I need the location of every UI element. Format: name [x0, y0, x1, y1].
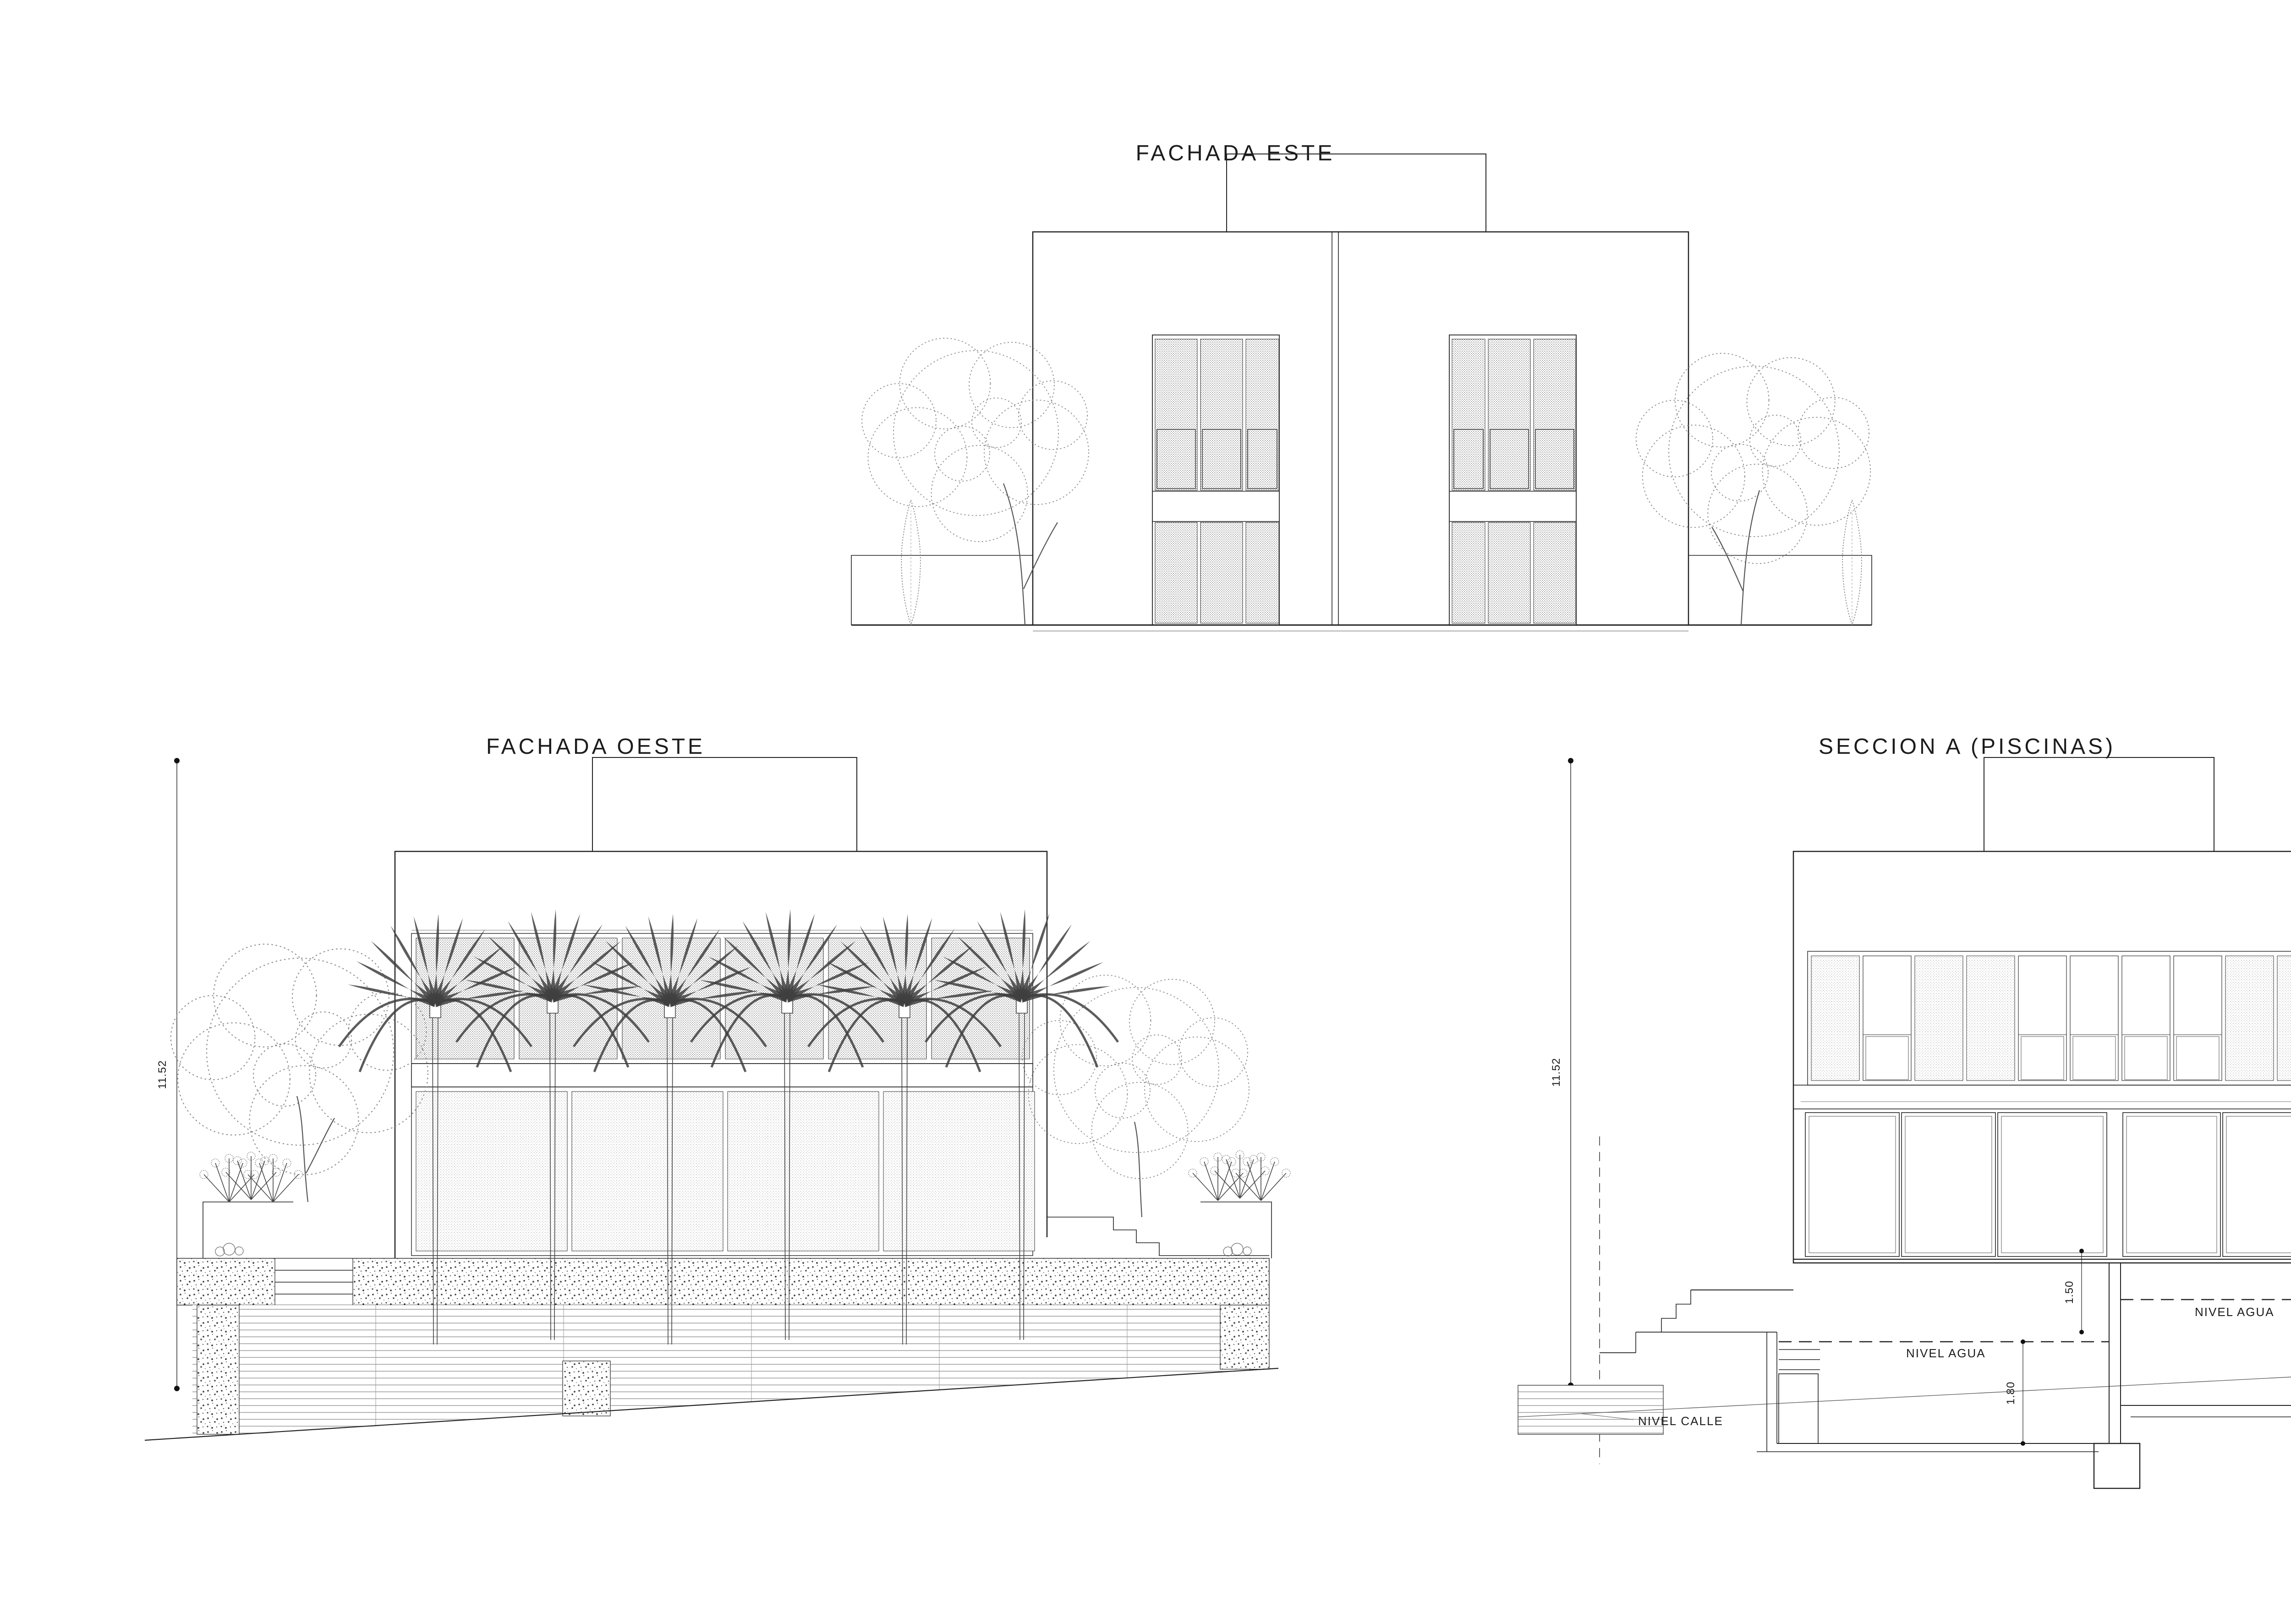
oeste-stone-pier-right	[1220, 1305, 1269, 1369]
crown-blob	[862, 384, 936, 458]
seccion-lower-pane	[1805, 1113, 1899, 1256]
nivel-agua-left-label: NIVEL AGUA	[1906, 1346, 1986, 1360]
rock	[1223, 1247, 1233, 1256]
seccion-left-pool: NIVEL AGUA 1.80	[1757, 1332, 2109, 1452]
seccion-glass-panel	[2018, 956, 2066, 1081]
glass-sash	[1866, 1037, 1908, 1080]
cypress-tree	[1842, 500, 1862, 625]
seccion-louvre-panel	[1915, 956, 1963, 1081]
seccion-lower-glazing	[1805, 1113, 2291, 1256]
glass-sash	[2021, 1037, 2064, 1080]
oeste-glazing-panel	[572, 1092, 723, 1251]
seccion-upper-panels	[1811, 956, 2291, 1081]
seccion-left-terraces	[1518, 1290, 1793, 1434]
rock	[1231, 1243, 1243, 1255]
este-garden-wall-left	[851, 555, 1033, 625]
oeste-lower-glazing-panels	[416, 1092, 1035, 1251]
crown-blob	[292, 949, 389, 1046]
crown-blob	[969, 342, 1054, 428]
louvre-panel-lower	[1200, 522, 1243, 623]
louvre-panel-upper	[1488, 339, 1530, 490]
oeste-entry-steps	[275, 1258, 353, 1305]
cypress-tree	[901, 500, 921, 625]
crown-blob	[214, 944, 316, 1047]
oeste-terrace-steps-right	[1047, 1217, 1269, 1256]
oeste-base-wall	[192, 1305, 1269, 1438]
planter-palm-leaf	[259, 1163, 273, 1202]
seccion-glass-panel	[1863, 956, 1911, 1081]
louvre-panel-upper	[1452, 339, 1485, 490]
seccion-lower-pane-inner	[2001, 1116, 2103, 1253]
planter-palm	[222, 1152, 280, 1200]
rock	[1243, 1247, 1251, 1255]
crown-blob	[1798, 397, 1869, 468]
louvre-panel-upper	[1200, 339, 1243, 490]
seccion-height-dimension: 11.52	[1550, 758, 1573, 1388]
seccion-floor-drop-dimension: 1.50	[2063, 1249, 2084, 1334]
oeste-glazing-panel	[416, 1092, 567, 1251]
oeste-height-dimension: 11.52	[156, 758, 180, 1391]
este-main-body	[1033, 232, 1688, 625]
louvre-panel-lower	[1452, 522, 1485, 623]
crown-blob	[1708, 464, 1807, 564]
crown-blob	[171, 996, 255, 1080]
palm-frond-drooping	[1022, 995, 1097, 1067]
seccion-roof-box	[1984, 757, 2214, 851]
louvre-panel-upper	[1155, 339, 1197, 490]
seccion-lower-pane-inner	[1809, 1116, 1896, 1253]
nivel-agua-right-label: NIVEL AGUA	[2195, 1305, 2275, 1319]
tree-trunk	[1135, 1122, 1142, 1217]
planter-palm-leaf	[1261, 1173, 1286, 1201]
title-fachada-oeste: FACHADA OESTE	[486, 735, 705, 759]
tree-trunk	[1003, 483, 1058, 625]
oeste-roof-box	[592, 757, 857, 851]
oeste-height-label: 11.52	[156, 1060, 169, 1089]
title-seccion-a: SECCION A (PISCINAS)	[1819, 735, 2116, 759]
planter-palm	[1232, 1153, 1290, 1201]
seccion-lower-pane-inner	[2127, 1116, 2217, 1253]
oeste-glazing-panel	[883, 1092, 1035, 1251]
oeste-planter-right	[1200, 1202, 1272, 1258]
louvre-panel-upper	[1246, 339, 1279, 490]
tree-crown	[1636, 353, 1871, 564]
crown-blob	[1179, 1018, 1248, 1086]
seccion-glass-panel	[2070, 956, 2118, 1081]
crown-blob	[1636, 400, 1713, 477]
rock	[215, 1247, 225, 1256]
pool-sump	[2094, 1443, 2140, 1488]
drawing-seccion-a: SECCION A (PISCINAS) 11.52	[1518, 735, 2291, 1488]
crown-blob	[972, 398, 1021, 448]
crown-blob	[935, 426, 990, 481]
crown-blob	[1129, 979, 1215, 1064]
planter-rocks	[1223, 1243, 1251, 1256]
planter-palm-leaf	[204, 1174, 229, 1202]
glass-sash	[2073, 1037, 2116, 1080]
seccion-lower-pane	[2223, 1113, 2291, 1256]
drawing-fachada-este: FACHADA ESTE	[851, 141, 1872, 631]
planter-palm-leaf	[1204, 1162, 1218, 1201]
pool-depth-label: 1.80	[2005, 1382, 2017, 1405]
crown-blob	[900, 338, 991, 429]
crown-blob	[932, 445, 1028, 542]
glass-sash	[2176, 1037, 2219, 1080]
tree-crown	[862, 338, 1089, 542]
seccion-louvre-panel	[1811, 956, 1859, 1081]
crown-blob	[1092, 1082, 1188, 1179]
oeste-stone-pier-left	[197, 1305, 239, 1434]
este-vegetation	[862, 338, 1870, 625]
oeste-glazing-panel	[728, 1092, 879, 1251]
crown-blob	[1132, 1035, 1182, 1085]
este-garden-wall-right	[1688, 555, 1872, 625]
seccion-glass-panel	[2174, 956, 2222, 1081]
nivel-calle-left-label: NIVEL CALLE	[1638, 1414, 1723, 1428]
rock	[235, 1247, 243, 1255]
seccion-louvre-panel	[2225, 956, 2274, 1081]
seccion-lower-pane-inner	[1905, 1116, 1992, 1253]
louvre-panel-lower	[1155, 522, 1197, 623]
crown-blob	[1022, 1020, 1096, 1095]
crown-blob	[1675, 353, 1769, 447]
crown-blob	[1019, 381, 1087, 450]
seccion-louvre-panel	[1967, 956, 2015, 1081]
planter-palm-leaf	[273, 1174, 298, 1202]
crown-blob	[253, 1044, 316, 1106]
este-window-bays	[1152, 335, 1576, 625]
planter-palm-leaf	[1247, 1162, 1261, 1201]
tree-trunk	[1712, 490, 1759, 625]
seccion-lower-pane	[2123, 1113, 2220, 1256]
louvre-panel-lower	[1246, 522, 1279, 623]
architectural-sheet: FACHADA ESTE FACHADA OESTE 11.52	[0, 0, 2291, 1624]
tree-crown	[1022, 975, 1249, 1179]
louvre-panel-upper	[1534, 339, 1576, 490]
seccion-lower-pane-inner	[2226, 1116, 2291, 1253]
planter-palm-leaf	[215, 1163, 229, 1202]
glass-sash	[2125, 1037, 2167, 1080]
oeste-planter-left	[203, 1202, 293, 1258]
planter-palm-leaf	[229, 1163, 243, 1202]
planter-rocks	[215, 1243, 243, 1256]
crown-blob	[893, 351, 1058, 516]
planter-palm-leaf	[1240, 1159, 1254, 1198]
este-roof-box	[1227, 154, 1486, 232]
tree-trunk	[297, 1096, 334, 1202]
palm-frond-drooping	[1022, 994, 1118, 1042]
seccion-glass-panel	[2122, 956, 2170, 1081]
planter-palm-leaf	[1193, 1173, 1218, 1201]
floor-drop-label: 1.50	[2063, 1281, 2076, 1304]
seccion-height-label: 11.52	[1550, 1058, 1562, 1086]
title-fachada-este: FACHADA ESTE	[1136, 141, 1335, 165]
louvre-panel-lower	[1488, 522, 1530, 623]
seccion-right-pool: NIVEL AGUA	[2121, 1278, 2291, 1417]
planter-palm-leaf	[1218, 1162, 1232, 1201]
crown-blob	[1095, 1063, 1150, 1118]
seccion-central-pool-wall	[2094, 1263, 2140, 1488]
crown-blob	[207, 958, 394, 1145]
seccion-louvre-panel	[2277, 956, 2291, 1081]
louvre-panel-lower	[1534, 522, 1576, 623]
crown-blob	[1750, 415, 1801, 466]
crown-blob	[1711, 444, 1768, 501]
planter-palm	[1211, 1151, 1269, 1198]
drawing-fachada-oeste: FACHADA OESTE 11.52	[145, 735, 1290, 1440]
seccion-lower-pane	[1902, 1113, 1995, 1256]
seccion-main-body	[1793, 851, 2291, 1263]
oeste-stone-pier-mid	[563, 1361, 610, 1416]
crown-blob	[1747, 357, 1835, 445]
seccion-lower-pane	[1998, 1113, 2107, 1256]
rock	[223, 1243, 235, 1255]
planter-palm-leaf	[273, 1163, 287, 1202]
crown-blob	[1054, 988, 1219, 1152]
